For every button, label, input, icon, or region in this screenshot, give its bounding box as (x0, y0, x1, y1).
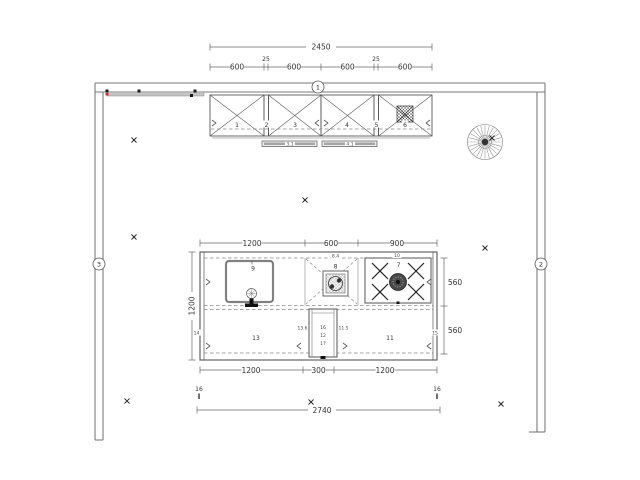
tall-tag-left-label: 13.6 (297, 326, 307, 332)
island-left-dim-text: 1200 (188, 296, 197, 315)
under-cabinet-light-1: 3.1 (262, 141, 317, 148)
x-mark (132, 235, 137, 240)
under-cabinet-light-2: 4.1 (322, 141, 377, 148)
sink-unit: 9 (226, 261, 273, 307)
filler-5 (374, 95, 379, 136)
seg-dim-6: 600 (398, 63, 413, 72)
center-burner (390, 274, 407, 291)
rail-marker-right (194, 90, 197, 93)
wall-tag-top-label: 1 (316, 84, 320, 92)
floor-plan-page: 1 3 2 2450 600 25 600 600 25 600 (0, 0, 640, 480)
island-top-dim-1: 1200 (242, 239, 261, 248)
island-top-dim-3: 900 (390, 239, 405, 248)
chevron-left-icon (315, 120, 319, 126)
tall-unit-mid-label: 12 (320, 333, 326, 339)
wall-rail (106, 90, 205, 98)
chevron-right-icon (212, 120, 216, 126)
light-2-label: 4.1 (346, 142, 353, 148)
edge-dim-right-text: 16 (433, 386, 441, 393)
cooktop-tag-label: 10 (394, 253, 400, 259)
seg-dim-3: 600 (287, 63, 302, 72)
island-bottom-dim-3: 1200 (375, 366, 394, 375)
edge-dim-left-text: 16 (195, 386, 203, 393)
x-mark (483, 246, 488, 251)
island-bottom-dim-2: 300 (311, 366, 326, 375)
wall-marker (190, 94, 193, 97)
cabinet-4-label: 4 (345, 122, 349, 129)
x-mark (309, 400, 314, 405)
panel-right-label: 15 (432, 331, 438, 337)
prep-unit-label: 8 (334, 264, 338, 271)
chevron-right-icon (324, 120, 328, 126)
wall-tag-right: 2 (535, 258, 547, 270)
x-mark (303, 198, 308, 203)
seg-dim-5: 25 (372, 56, 380, 63)
wall-tag-right-label: 2 (539, 261, 543, 269)
island-right-dim-1: 560 (448, 278, 463, 287)
edge-dimension-left: 16 (195, 386, 203, 399)
tall-unit-top-label: 16 (320, 325, 326, 331)
ceiling-fan-symbol (468, 125, 503, 160)
floor-plan-canvas: 1 3 2 2450 600 25 600 600 25 600 (0, 0, 640, 480)
seg-dim-4: 600 (340, 63, 355, 72)
cabinet-2-label: 2 (265, 122, 269, 129)
kitchen-island: 9 8.4 8 (193, 252, 440, 360)
wall-cabinet-1 (210, 95, 264, 136)
seg-dim-1: 600 (230, 63, 245, 72)
island-right-dim-2: 560 (448, 326, 463, 335)
wall-cabinet-3 (269, 95, 322, 136)
base-right-label: 11 (386, 335, 394, 342)
tall-tag-right-label: 11.5 (339, 326, 349, 332)
cabinet-5-label: 5 (375, 122, 379, 129)
rail-end-marker-red (106, 93, 109, 96)
island-top-dim-2: 600 (324, 239, 339, 248)
cooktop-unit: 10 7 (365, 253, 431, 305)
chevron-left-icon (426, 120, 430, 126)
light-1-label: 3.1 (286, 142, 293, 148)
seg-dim-2: 25 (262, 56, 270, 63)
wall-tag-left: 3 (93, 258, 105, 270)
rail-bar (107, 92, 204, 96)
cooktop-bottom-marker (397, 302, 400, 305)
prep-tag-label: 8.4 (332, 254, 339, 260)
island-bottom-dim-1: 1200 (241, 366, 260, 375)
tall-unit-bottom-label: 17 (320, 341, 326, 347)
wall-tag-left-label: 3 (97, 261, 101, 269)
filler-2 (264, 95, 269, 136)
island-right-dimensions (441, 258, 448, 354)
tall-unit-marker (321, 356, 326, 359)
base-left-label: 13 (252, 335, 260, 342)
panel-left-label: 14 (194, 331, 200, 337)
cooktop-unit-label: 7 (397, 262, 401, 269)
cabinet-3-label: 3 (293, 122, 297, 129)
rail-marker-mid (138, 90, 141, 93)
upper-total-dim-text: 2450 (311, 43, 330, 52)
cabinet-6-label: 6 (403, 122, 407, 129)
edge-dimension-right: 16 (433, 386, 441, 399)
x-mark (125, 399, 130, 404)
x-mark (132, 138, 137, 143)
wall-tag-top: 1 (312, 81, 324, 93)
x-mark (499, 402, 504, 407)
cabinet-1-label: 1 (235, 122, 239, 129)
rail-marker-left (106, 90, 109, 93)
overall-dim-text: 2740 (312, 406, 331, 415)
extractor-hood (397, 106, 413, 122)
wall-cabinet-4 (321, 95, 374, 136)
sink-unit-label: 9 (251, 266, 255, 273)
